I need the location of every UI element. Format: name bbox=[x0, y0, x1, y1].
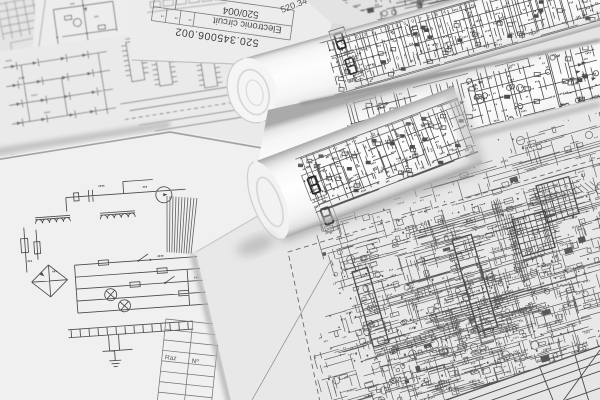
svg-text:Nº: Nº bbox=[191, 358, 199, 366]
svg-text:Raz: Raz bbox=[165, 354, 177, 362]
